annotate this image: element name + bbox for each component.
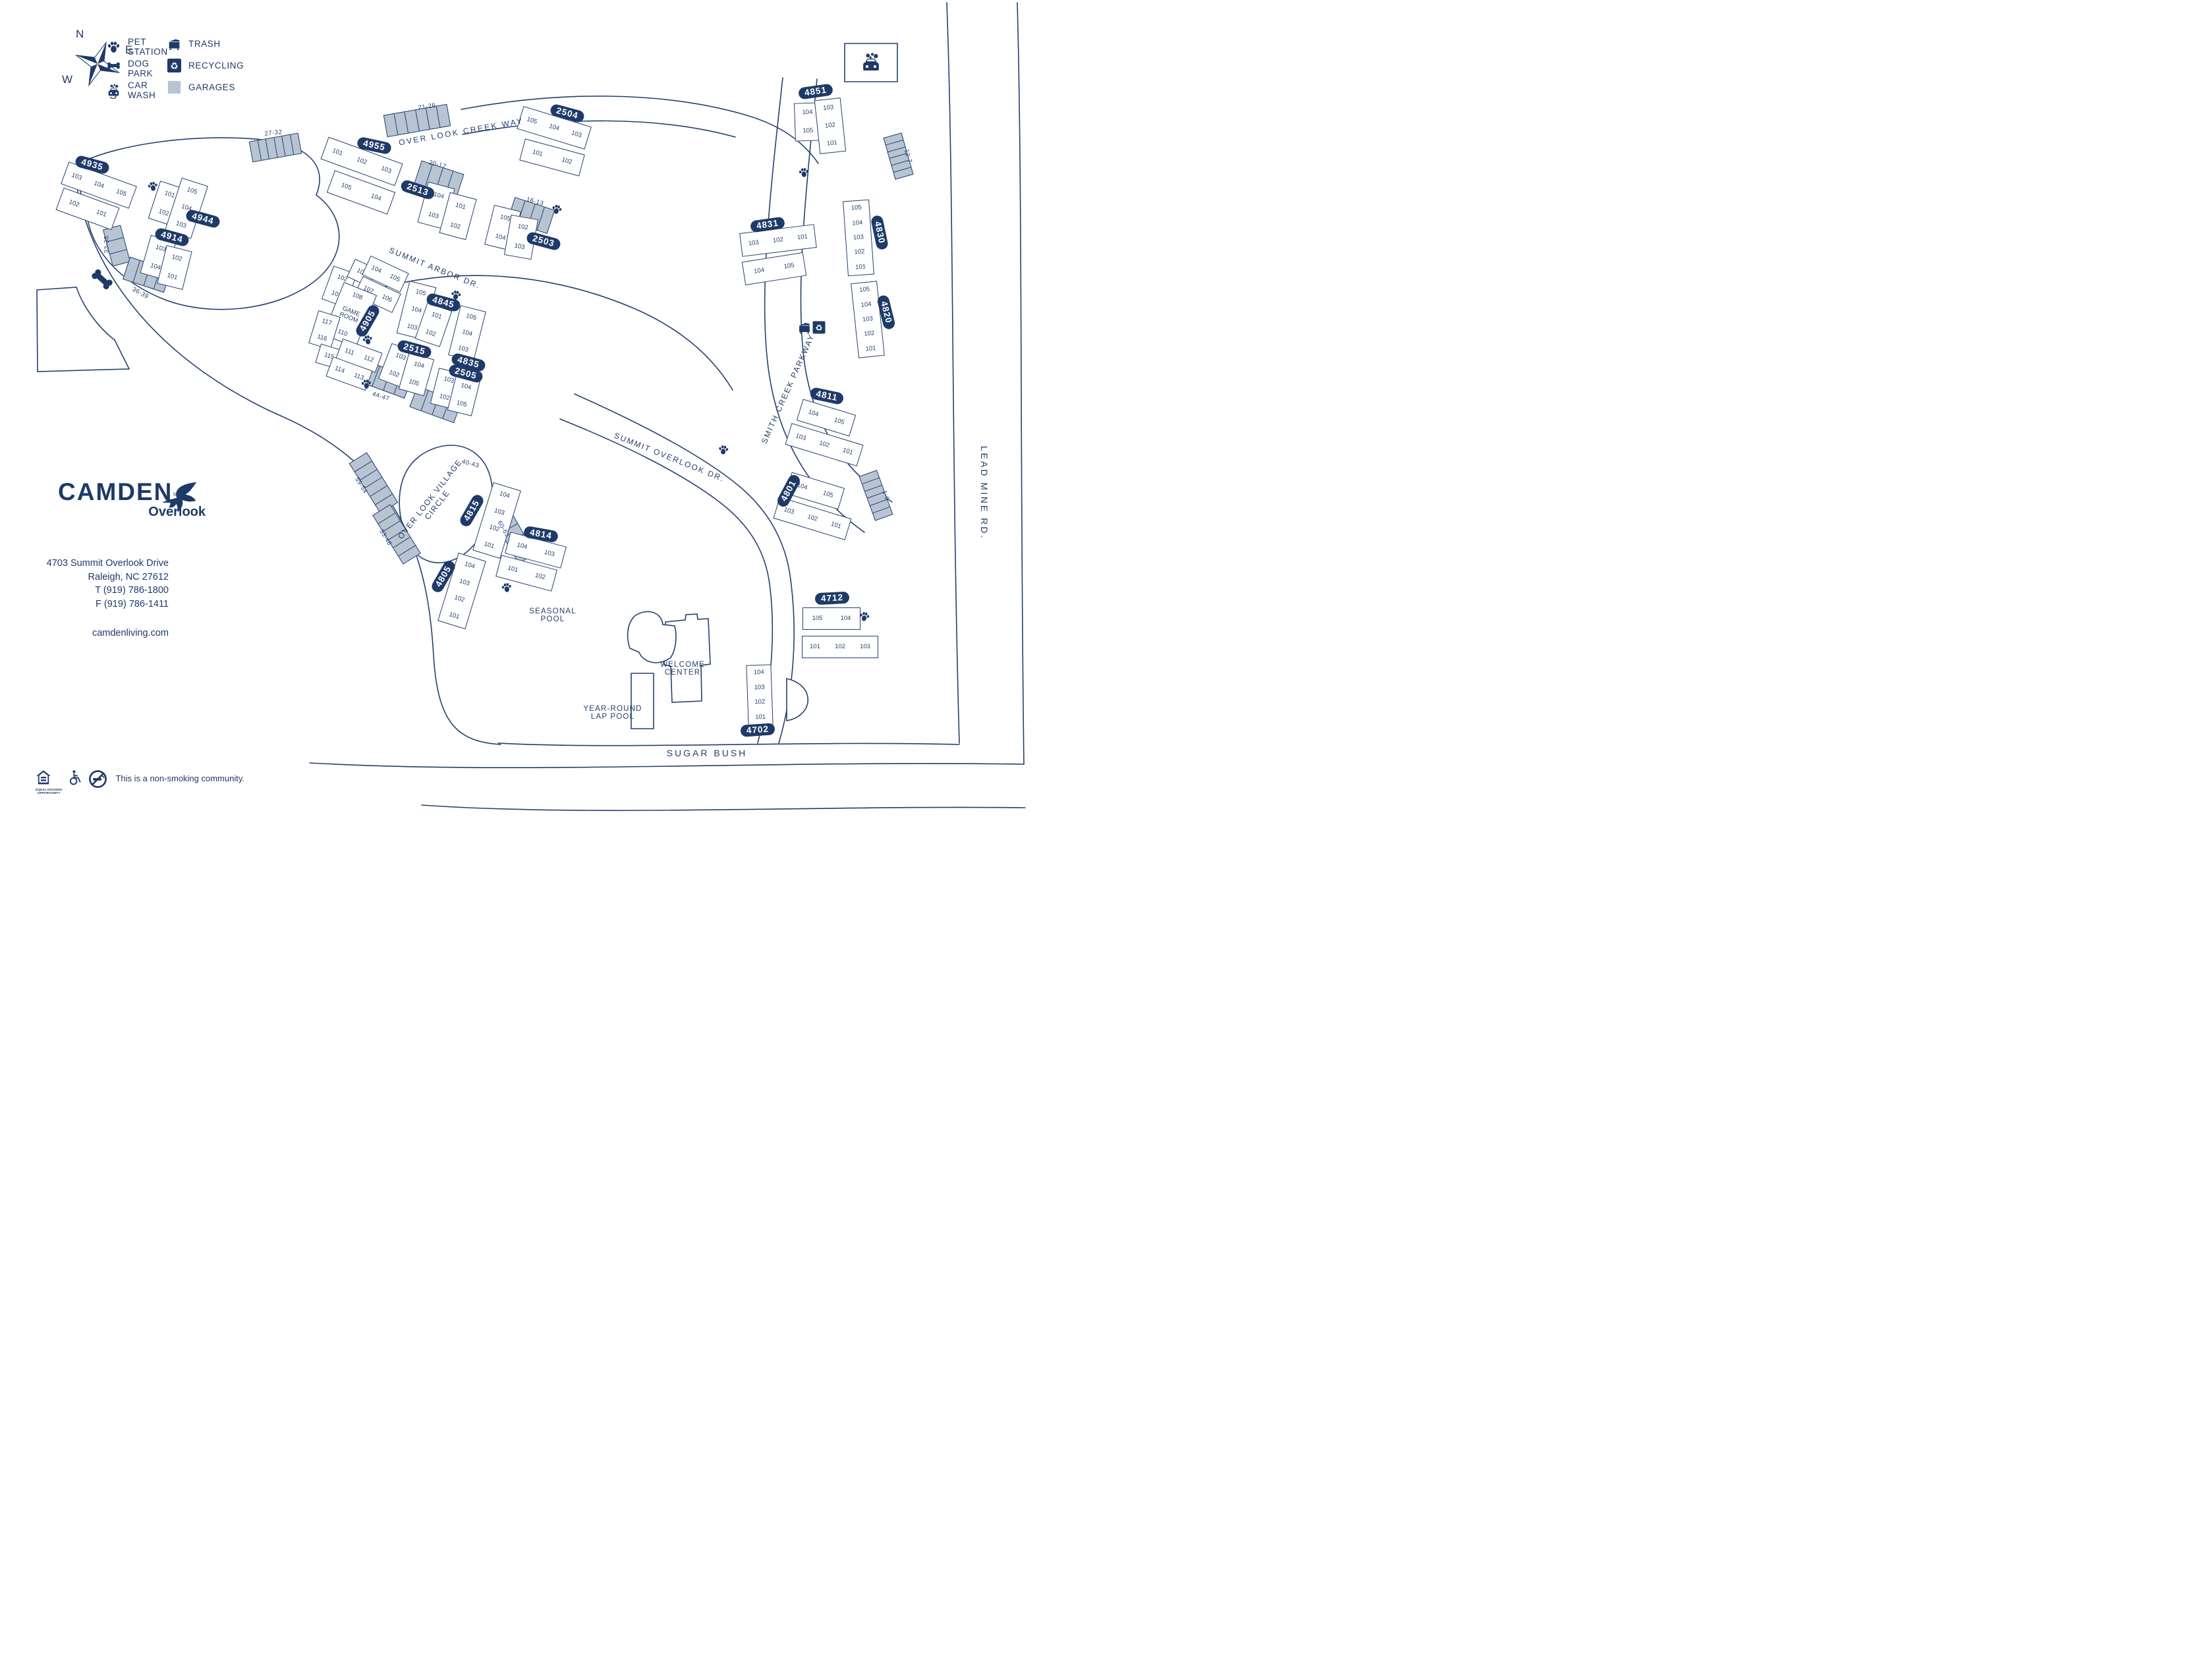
unit-label: 102 bbox=[157, 208, 169, 217]
svg-text:♻: ♻ bbox=[815, 323, 822, 333]
unit-label: 101 bbox=[483, 541, 495, 550]
legend-item-car-wash: CAR WASH bbox=[107, 80, 155, 100]
unit-label: 101 bbox=[830, 521, 842, 530]
unit-label: 104 bbox=[460, 382, 472, 391]
unit-label: 104 bbox=[807, 409, 819, 418]
unit-label: 104 bbox=[802, 109, 812, 117]
unit-label: 102 bbox=[561, 157, 573, 166]
building-4820-wing: 105104103102101 bbox=[851, 281, 885, 358]
website-link[interactable]: camdenliving.com bbox=[37, 627, 169, 640]
legend-label: TRASH bbox=[188, 39, 221, 49]
unit-label: 101 bbox=[430, 311, 442, 321]
unit-label: 101 bbox=[842, 447, 854, 457]
unit-label: 102 bbox=[806, 514, 818, 523]
address-line1: 4703 Summit Overlook Drive bbox=[37, 557, 169, 571]
garage-icon bbox=[167, 80, 181, 94]
unit-label: 114 bbox=[334, 365, 346, 375]
amenity-label: SEASONAL POOL bbox=[529, 607, 577, 623]
building-badge-4702: 4702 bbox=[740, 723, 775, 737]
legend-label: GARAGES bbox=[188, 82, 235, 92]
unit-label: 103 bbox=[853, 234, 864, 241]
unit-label: 117 bbox=[321, 318, 332, 327]
unit-label: 103 bbox=[380, 165, 392, 175]
footer: EQUAL HOUSING OPPORTUNITY This is a non-… bbox=[36, 770, 244, 796]
svg-text:♻: ♻ bbox=[170, 61, 179, 72]
legend-item-garages: GARAGES bbox=[167, 80, 235, 94]
building-4830-wing: 105104103102101 bbox=[843, 200, 874, 277]
bone-icon bbox=[107, 62, 121, 76]
unit-label: 112 bbox=[363, 354, 375, 364]
unit-label: 103 bbox=[862, 316, 874, 323]
no-smoking-icon bbox=[88, 770, 107, 789]
unit-label: 102 bbox=[773, 237, 784, 244]
equal-housing-text: EQUAL HOUSING OPPORTUNITY bbox=[36, 789, 62, 796]
compass-w: W bbox=[62, 73, 72, 86]
legend-item-dog-park: DOG PARK bbox=[107, 59, 153, 78]
unit-label: 111 bbox=[344, 347, 355, 356]
address-line2: Raleigh, NC 27612 bbox=[37, 571, 169, 584]
unit-label: 101 bbox=[865, 345, 876, 353]
unit-label: 103 bbox=[783, 507, 795, 516]
unit-label: 110 bbox=[337, 328, 349, 338]
unit-label: 102 bbox=[336, 273, 348, 283]
unit-label: 105 bbox=[340, 182, 352, 192]
unit-label: 105 bbox=[408, 378, 420, 387]
fax: F (919) 786-1411 bbox=[37, 598, 169, 611]
unit-label: 103 bbox=[457, 345, 469, 354]
equal-housing-icon bbox=[36, 777, 51, 788]
street-label: SUGAR BUSH bbox=[667, 748, 748, 758]
unit-label: 105 bbox=[389, 273, 401, 284]
unit-label: 103 bbox=[571, 130, 582, 139]
unit-label: 101 bbox=[167, 272, 179, 281]
trash-icon bbox=[167, 37, 181, 51]
unit-label: 103 bbox=[514, 242, 525, 251]
unit-label: 102 bbox=[818, 440, 830, 449]
garage-strip-27-32 bbox=[249, 133, 302, 163]
unit-label: 104 bbox=[860, 301, 872, 309]
unit-label: 103 bbox=[823, 105, 834, 113]
unit-label: 102 bbox=[534, 573, 546, 582]
unit-label: 102 bbox=[835, 644, 845, 650]
unit-label: GAME ROOM bbox=[339, 305, 362, 325]
hummingbird-logo-icon bbox=[162, 481, 199, 519]
garage-label-36-39: 36-39 bbox=[131, 286, 150, 300]
unit-label: 105 bbox=[415, 289, 427, 298]
unit-label: 105 bbox=[851, 205, 862, 212]
unit-label: 101 bbox=[797, 234, 808, 242]
unit-label: 102 bbox=[754, 699, 765, 706]
legend-label: PET STATION bbox=[128, 37, 168, 57]
unit-label: 104 bbox=[548, 123, 560, 132]
unit-label: 103 bbox=[70, 172, 82, 182]
unit-label: 102 bbox=[356, 157, 368, 167]
unit-label: 104 bbox=[370, 193, 381, 203]
unit-label: 103 bbox=[795, 433, 806, 442]
unit-label: 106 bbox=[381, 294, 393, 304]
pet-station-paw-icon bbox=[717, 443, 729, 456]
building-4712-wing: 105104 bbox=[802, 607, 860, 630]
dog-park-bone-icon bbox=[89, 267, 115, 292]
pet-station-paw-icon bbox=[146, 180, 159, 193]
unit-label: 101 bbox=[507, 565, 519, 574]
unit-label: 104 bbox=[461, 329, 473, 338]
unit-label: 102 bbox=[388, 370, 400, 379]
unit-label: 103 bbox=[428, 211, 439, 220]
unit-label: 101 bbox=[855, 264, 866, 271]
building-4811-wing: 103102101 bbox=[785, 423, 864, 466]
pet-station-paw-icon bbox=[360, 378, 372, 390]
street-label: LEAD MINE RD. bbox=[979, 446, 990, 540]
unit-label: 105 bbox=[833, 417, 845, 426]
legend-label: RECYCLING bbox=[188, 61, 244, 70]
unit-label: 103 bbox=[544, 549, 555, 559]
recycle-map-icon: ♻ bbox=[813, 322, 826, 334]
unit-label: 102 bbox=[854, 249, 865, 256]
building-4835-wing: 105104103 bbox=[448, 305, 486, 361]
site-map-canvas: 1031041051021014935101102103105104495510… bbox=[0, 0, 1098, 840]
car-wash-map-icon bbox=[860, 52, 882, 73]
unit-label: 103 bbox=[175, 221, 186, 230]
phone: T (919) 786-1800 bbox=[37, 584, 169, 598]
unit-label: 101 bbox=[826, 140, 837, 148]
compass-n: N bbox=[76, 28, 84, 41]
unit-label: 105 bbox=[783, 262, 795, 270]
building-4851-wing: 103102101 bbox=[814, 98, 846, 154]
unit-label: 101 bbox=[163, 190, 175, 199]
unit-label: 104 bbox=[754, 669, 764, 677]
map-layer: 1031041051021014935101102103105104495510… bbox=[0, 0, 1098, 840]
unit-label: 105 bbox=[526, 117, 538, 126]
unit-label: 104 bbox=[754, 267, 765, 275]
legend-label: CAR WASH bbox=[128, 80, 155, 100]
unit-label: 105 bbox=[465, 313, 477, 322]
recycle-icon: ♻ bbox=[167, 59, 181, 72]
building-4905-wing: 117116 bbox=[308, 310, 341, 350]
unit-label: 101 bbox=[448, 611, 460, 621]
unit-label: 105 bbox=[859, 287, 870, 294]
paw-icon bbox=[107, 40, 121, 54]
unit-label: 101 bbox=[755, 714, 766, 721]
legend-item-trash: TRASH bbox=[167, 37, 221, 51]
pet-station-paw-icon bbox=[798, 167, 810, 179]
unit-label: 101 bbox=[532, 149, 544, 158]
unit-label: 104 bbox=[852, 219, 863, 227]
unit-label: 104 bbox=[499, 491, 511, 500]
unit-label: 104 bbox=[516, 542, 528, 551]
unit-label: 105 bbox=[456, 399, 468, 408]
unit-label: 101 bbox=[96, 209, 107, 219]
legend-label: DOG PARK bbox=[128, 59, 153, 78]
garage-label-33-35: 33-35 bbox=[103, 236, 111, 254]
brand-name: CAMDEN bbox=[58, 478, 173, 505]
unit-label: 101 bbox=[455, 202, 466, 211]
unit-label: 104 bbox=[433, 191, 445, 200]
unit-label: 104 bbox=[413, 361, 425, 370]
equal-housing-block: EQUAL HOUSING OPPORTUNITY bbox=[36, 770, 62, 796]
carwash-icon bbox=[107, 84, 121, 98]
unit-label: 104 bbox=[370, 265, 383, 275]
pet-station-paw-icon bbox=[500, 581, 513, 594]
unit-label: 105 bbox=[822, 490, 834, 499]
unit-label: 102 bbox=[68, 199, 80, 209]
building-4831-wing: 104105 bbox=[742, 252, 806, 285]
legend-item-pet-station: PET STATION bbox=[107, 37, 168, 57]
unit-label: 103 bbox=[407, 323, 418, 332]
unit-label: 104 bbox=[841, 615, 851, 622]
unit-label: 103 bbox=[860, 644, 870, 650]
building-badge-4712: 4712 bbox=[815, 592, 850, 605]
unit-label: 116 bbox=[316, 333, 327, 343]
unit-label: 102 bbox=[424, 329, 436, 339]
unit-label: 105 bbox=[812, 615, 823, 622]
unit-label: 102 bbox=[453, 595, 465, 604]
unit-label: 105 bbox=[115, 188, 127, 198]
unit-label: 104 bbox=[464, 561, 476, 571]
unit-label: 104 bbox=[93, 181, 105, 190]
unit-label: 103 bbox=[443, 376, 455, 385]
unit-label: 103 bbox=[459, 578, 470, 587]
accessibility-icon bbox=[67, 770, 84, 786]
unit-label: 102 bbox=[517, 223, 528, 232]
unit-label: 103 bbox=[748, 240, 759, 248]
building-badge-4851: 4851 bbox=[798, 83, 833, 99]
building-badge-4830: 4830 bbox=[870, 215, 889, 251]
unit-label: 104 bbox=[410, 306, 422, 315]
trash-map-icon bbox=[798, 321, 812, 335]
unit-label: 102 bbox=[449, 221, 461, 231]
amenity-label: WELCOME CENTER bbox=[660, 661, 705, 677]
unit-label: 103 bbox=[754, 684, 765, 691]
unit-label: 101 bbox=[331, 148, 343, 157]
contact-block: 4703 Summit Overlook Drive Raleigh, NC 2… bbox=[37, 557, 169, 640]
unit-label: 102 bbox=[439, 393, 451, 402]
unit-label: 102 bbox=[171, 254, 183, 263]
non-smoking-message: This is a non-smoking community. bbox=[115, 770, 244, 783]
unit-label: 104 bbox=[494, 233, 506, 242]
pet-station-paw-icon bbox=[449, 289, 463, 302]
unit-label: 102 bbox=[825, 122, 836, 130]
unit-label: 101 bbox=[810, 644, 820, 650]
unit-label: 103 bbox=[395, 352, 407, 362]
unit-label: 105 bbox=[802, 128, 813, 135]
unit-label: 103 bbox=[493, 507, 505, 517]
building-4712-wing: 101102103 bbox=[802, 636, 878, 658]
unit-label: 105 bbox=[186, 186, 198, 196]
street-label: OVER LOOK VILLAGE CIRCLE bbox=[396, 457, 471, 546]
legend-item-recycling: ♻RECYCLING bbox=[167, 59, 244, 72]
unit-label: 102 bbox=[864, 330, 875, 338]
amenity-label: YEAR-ROUND LAP POOL bbox=[583, 705, 642, 721]
building-4702-wing: 104103102101 bbox=[746, 664, 773, 725]
street-label: SUMMIT OVERLOOK DR. bbox=[613, 431, 726, 484]
pet-station-paw-icon bbox=[858, 610, 871, 623]
pet-station-paw-icon bbox=[361, 333, 374, 347]
unit-label: 108 bbox=[351, 292, 363, 302]
